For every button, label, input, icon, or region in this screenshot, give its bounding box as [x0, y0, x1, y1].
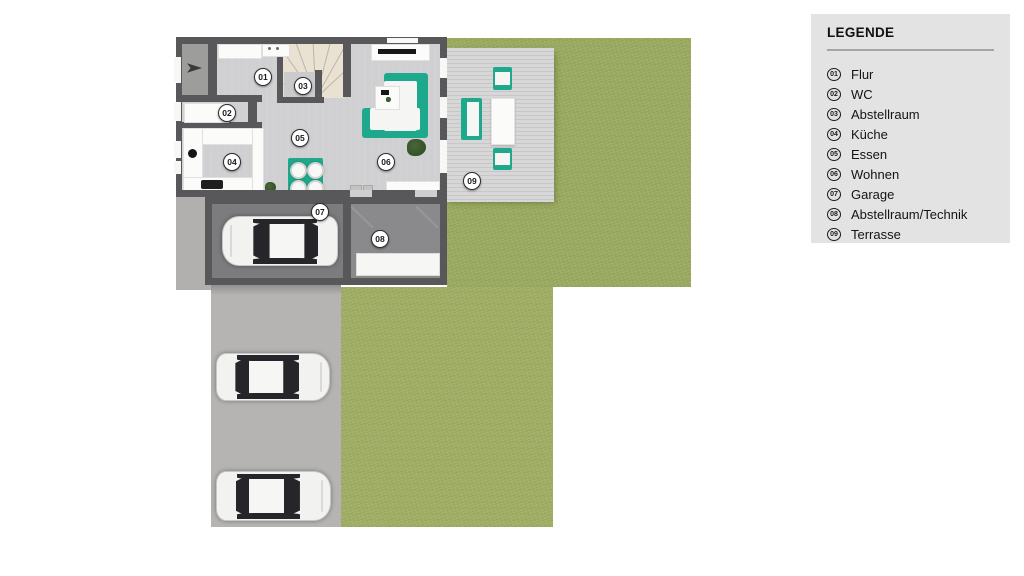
legend-item-01: 01 Flur: [827, 64, 994, 84]
legend-item-08: 08 Abstellraum/Technik: [827, 204, 994, 224]
legend-item-07: 07 Garage: [827, 184, 994, 204]
legend-item-number: 01: [827, 68, 841, 81]
legend-item-label: WC: [851, 87, 873, 102]
room-marker-03: 03: [294, 77, 312, 95]
legend-item-number: 04: [827, 128, 841, 141]
legend-item-label: Terrasse: [851, 227, 901, 242]
room-marker-09: 09: [463, 172, 481, 190]
legend-item-number: 03: [827, 108, 841, 121]
legend-item-label: Flur: [851, 67, 873, 82]
room-marker-08: 08: [371, 230, 389, 248]
legend-item-number: 09: [827, 228, 841, 241]
legend-panel: LEGENDE 01 Flur 02 WC 03 Abstellraum 04 …: [811, 14, 1010, 243]
room-marker-06: 06: [377, 153, 395, 171]
legend-item-label: Abstellraum/Technik: [851, 207, 967, 222]
legend-item-number: 05: [827, 148, 841, 161]
legend-item-label: Abstellraum: [851, 107, 920, 122]
legend-item-03: 03 Abstellraum: [827, 104, 994, 124]
legend-item-number: 02: [827, 88, 841, 101]
legend-item-02: 02 WC: [827, 84, 994, 104]
legend-item-number: 07: [827, 188, 841, 201]
room-marker-05: 05: [291, 129, 309, 147]
legend-item-label: Küche: [851, 127, 888, 142]
room-marker-04: 04: [223, 153, 241, 171]
legend-item-number: 06: [827, 168, 841, 181]
room-marker-07: 07: [311, 203, 329, 221]
legend-item-09: 09 Terrasse: [827, 224, 994, 244]
legend-items: 01 Flur 02 WC 03 Abstellraum 04 Küche 05…: [827, 64, 994, 244]
legend-item-number: 08: [827, 208, 841, 221]
legend-divider: [827, 49, 994, 51]
legend-item-label: Garage: [851, 187, 894, 202]
legend-item-04: 04 Küche: [827, 124, 994, 144]
legend-title: LEGENDE: [827, 25, 994, 40]
legend-item-label: Wohnen: [851, 167, 899, 182]
room-marker-01: 01: [254, 68, 272, 86]
floorplan-canvas: 010203040506070809 LEGENDE 01 Flur 02 WC…: [0, 0, 1024, 576]
legend-item-06: 06 Wohnen: [827, 164, 994, 184]
legend-item-05: 05 Essen: [827, 144, 994, 164]
room-marker-02: 02: [218, 104, 236, 122]
legend-item-label: Essen: [851, 147, 887, 162]
